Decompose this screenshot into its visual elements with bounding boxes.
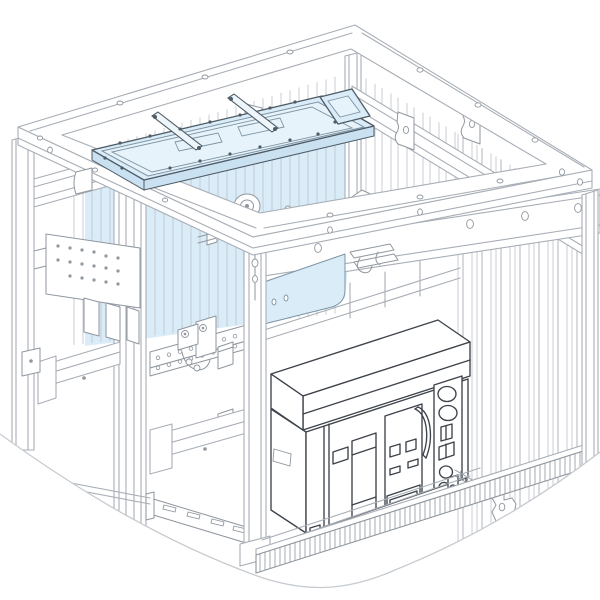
breaker-button-round bbox=[438, 387, 456, 402]
illustration-canvas bbox=[0, 0, 600, 600]
right-corner-post bbox=[582, 190, 598, 470]
connection-plate bbox=[30, 234, 140, 308]
front-corner-post bbox=[240, 240, 270, 566]
cubicle-breaker-diagram bbox=[0, 0, 600, 600]
roof-clip bbox=[74, 168, 92, 194]
breaker-button-round bbox=[439, 406, 457, 421]
breaker-accessory-cover bbox=[352, 433, 376, 521]
left-mounting-rail-upper bbox=[38, 342, 120, 404]
panel-clamp-bracket bbox=[395, 112, 414, 150]
left-mounting-rail-lower bbox=[150, 408, 250, 474]
